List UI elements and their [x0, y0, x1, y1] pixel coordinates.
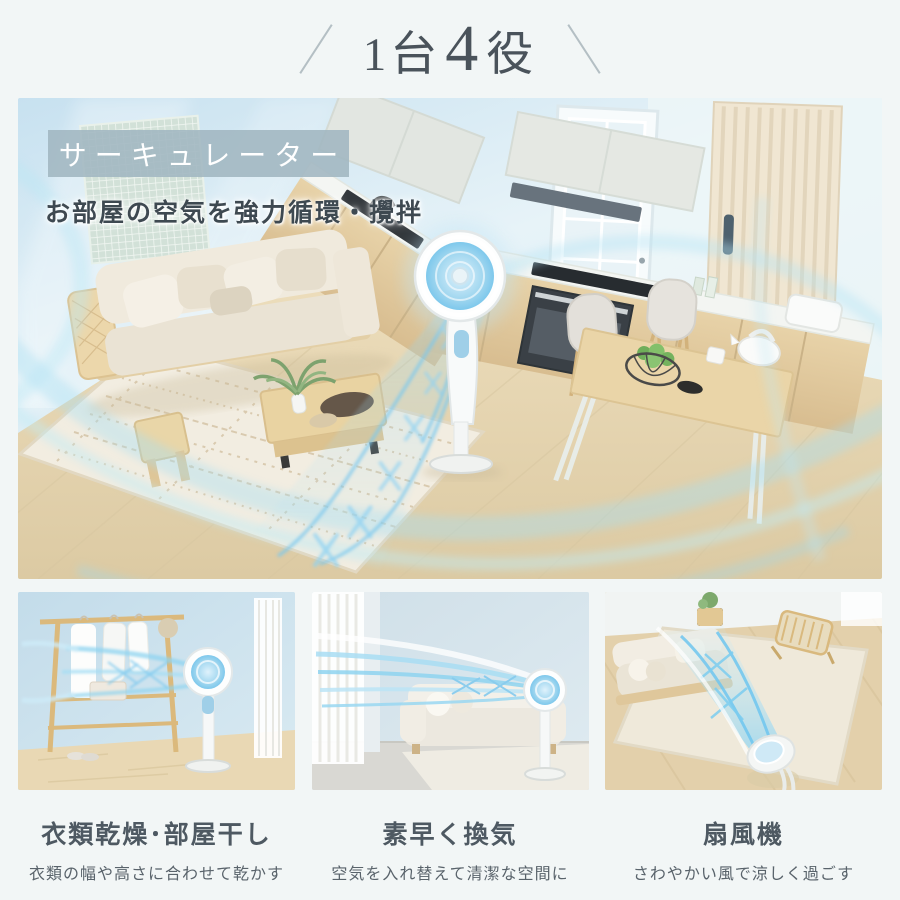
- rug: [402, 744, 589, 790]
- circulator-badge: サーキュレーター: [48, 130, 349, 177]
- feature-row: 衣類乾燥･部屋干し 衣類の幅や高さに合わせて乾かす: [18, 592, 882, 884]
- page-title: 1台 4 役: [363, 11, 538, 87]
- curtain: [254, 598, 282, 758]
- title-slash-right-decoration: [568, 24, 601, 74]
- feature-title-laundry: 衣類乾燥･部屋干し: [18, 815, 295, 851]
- mug: [706, 346, 726, 364]
- feature-caption-laundry: 衣類の幅や高さに合わせて乾かす: [18, 860, 295, 884]
- feature-title-fan: 扇風機: [605, 815, 882, 851]
- title-suffix: 役: [486, 15, 537, 84]
- page-header: 1台 4 役: [0, 0, 900, 98]
- feature-caption-ventilation: 空気を入れ替えて清潔な空間に: [312, 860, 589, 884]
- feature-card-fan: 扇風機 さわやかい風で涼しく過ごす: [605, 592, 882, 884]
- fan-base: [430, 455, 492, 473]
- fan-display: [454, 330, 469, 358]
- fan-head: [415, 231, 505, 321]
- feature-thumb-fan: [605, 592, 882, 790]
- circulator-badge-label: サーキュレーター: [51, 134, 346, 174]
- feature-card-ventilation: 素早く換気 空気を入れ替えて清潔な空間に: [312, 592, 589, 884]
- window-curtain: [312, 592, 380, 764]
- feature-thumb-laundry: [18, 592, 295, 790]
- feature-thumb-ventilation: [312, 592, 589, 790]
- title-number: 4: [445, 11, 482, 87]
- hero-subtitle: お部屋の空気を強力循環・攪拌: [45, 193, 423, 229]
- curtain: [841, 592, 882, 626]
- hat-on-rack: [158, 618, 178, 638]
- ventilation-scene-illustration: [312, 592, 589, 790]
- fan-cooling-scene-illustration: [605, 592, 882, 790]
- feature-caption-fan: さわやかい風で涼しく過ごす: [605, 860, 882, 884]
- title-slash-left-decoration: [299, 24, 332, 74]
- feature-title-ventilation: 素早く換気: [312, 815, 589, 851]
- feature-card-laundry: 衣類乾燥･部屋干し 衣類の幅や高さに合わせて乾かす: [18, 592, 295, 884]
- hero-image: サーキュレーター お部屋の空気を強力循環・攪拌: [18, 98, 882, 579]
- title-prefix: 1台: [363, 15, 442, 84]
- promo-page: 1台 4 役: [0, 0, 900, 900]
- laundry-scene-illustration: [18, 592, 295, 790]
